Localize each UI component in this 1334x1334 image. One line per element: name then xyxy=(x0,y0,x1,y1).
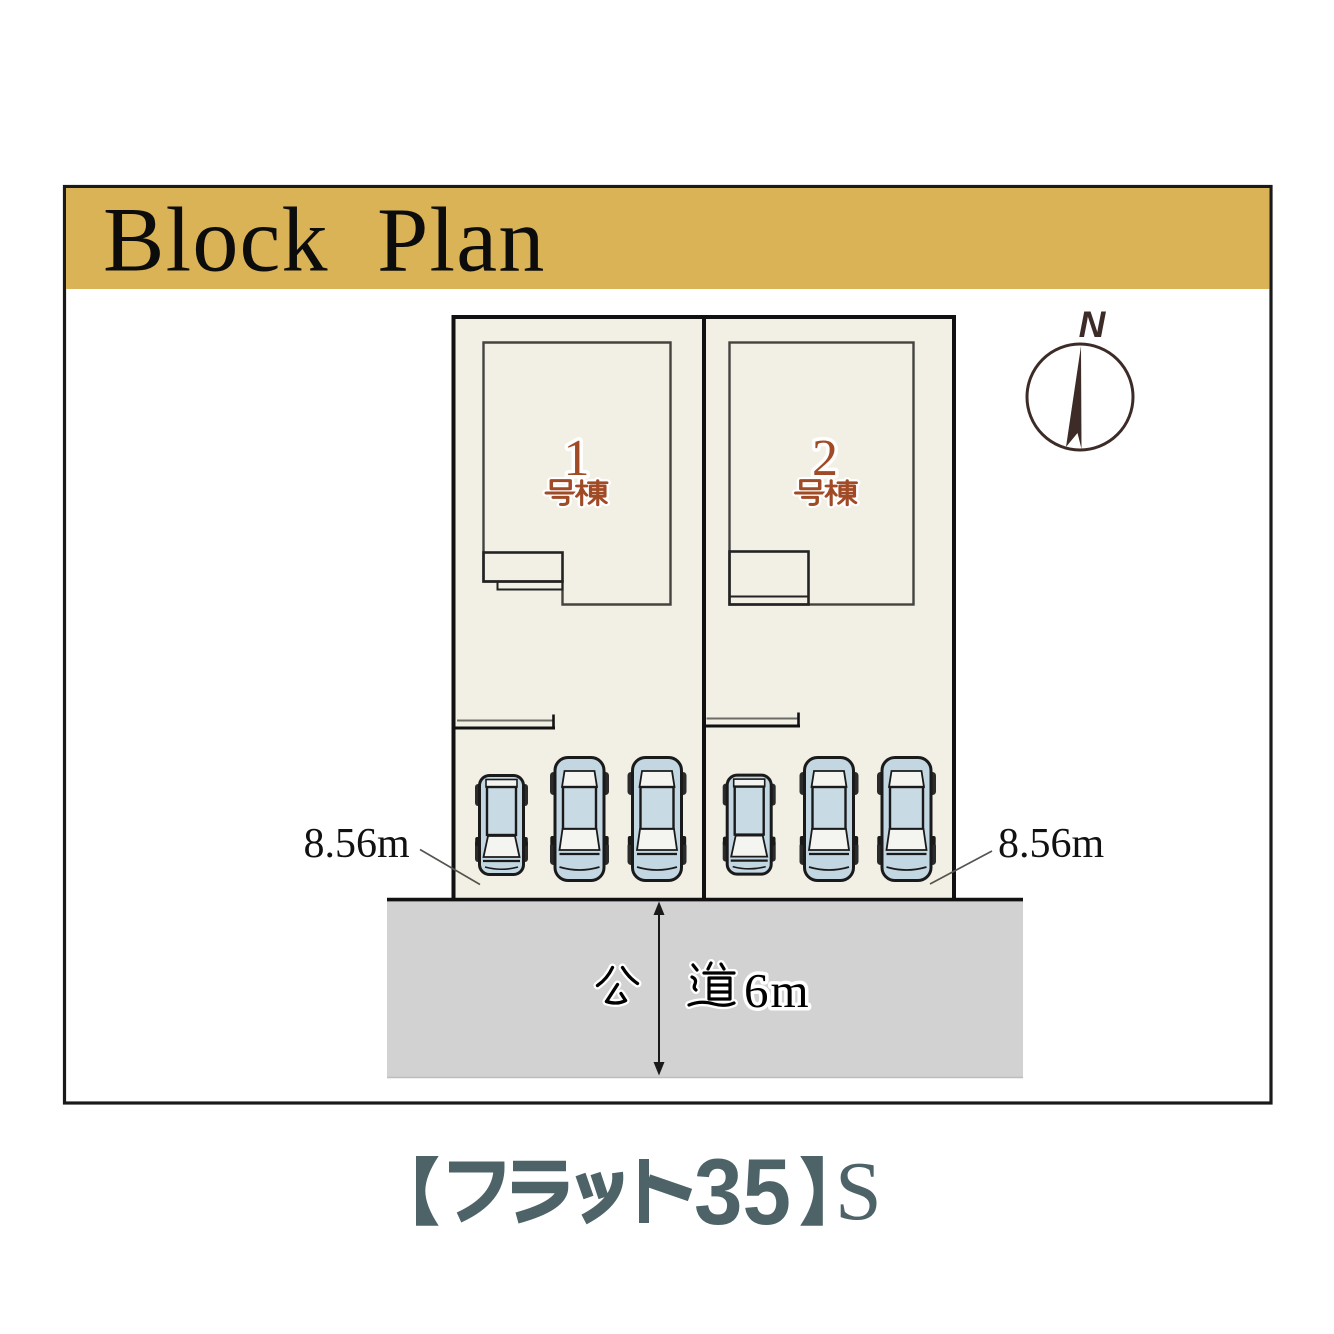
svg-text:S: S xyxy=(835,1145,882,1238)
svg-text:6m: 6m xyxy=(744,963,811,1018)
svg-text:N: N xyxy=(1079,304,1107,345)
svg-text:8.56m: 8.56m xyxy=(998,821,1105,867)
svg-text:35: 35 xyxy=(694,1139,791,1244)
svg-text:8.56m: 8.56m xyxy=(304,821,411,867)
svg-text:Block Plan: Block Plan xyxy=(103,189,546,291)
